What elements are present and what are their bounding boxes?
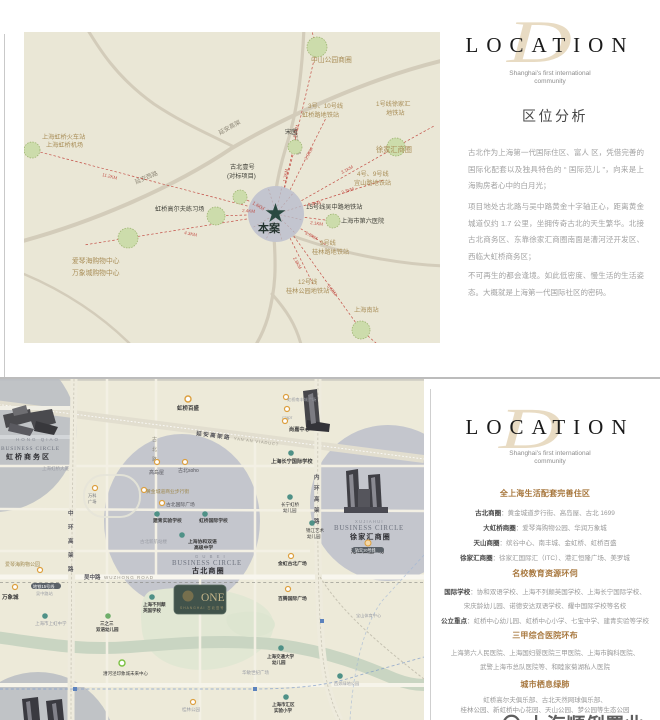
svg-text:WUZHONG ROAD: WUZHONG ROAD <box>104 575 154 580</box>
svg-text:高级中学: 高级中学 <box>194 544 213 551</box>
svg-text:上海市上虹中学: 上海市上虹中学 <box>35 620 67 627</box>
svg-text:上海交通大学: 上海交通大学 <box>267 653 294 660</box>
svg-text:锦江艺术: 锦江艺术 <box>306 527 324 534</box>
svg-text:爱琴海购物中心: 爱琴海购物中心 <box>72 256 120 265</box>
svg-text:幼儿园: 幼儿园 <box>283 507 297 514</box>
svg-text:路: 路 <box>314 517 320 525</box>
svg-text:幼儿园: 幼儿园 <box>272 659 286 666</box>
svg-text:高: 高 <box>68 537 74 545</box>
svg-text:中: 中 <box>68 509 74 517</box>
svg-text:英国学校: 英国学校 <box>143 607 161 614</box>
svg-text:内: 内 <box>314 473 320 481</box>
svg-text:轨交10号线: 轨交10号线 <box>355 547 375 553</box>
svg-text:上海协和双语: 上海协和双语 <box>188 538 217 545</box>
svg-text:环: 环 <box>314 484 320 492</box>
svg-text:地铁15号线: 地铁15号线 <box>33 583 55 590</box>
svg-text:G U B E I: G U B E I <box>195 554 226 559</box>
svg-text:(对标项目): (对标项目) <box>227 172 256 180</box>
svg-text:架: 架 <box>67 551 74 559</box>
svg-text:15号线吴中路地铁站: 15号线吴中路地铁站 <box>306 203 362 211</box>
svg-text:上海不列颠: 上海不列颠 <box>143 601 166 608</box>
svg-text:宝山体育中心: 宝山体育中心 <box>356 612 382 619</box>
svg-text:高: 高 <box>314 495 320 503</box>
svg-text:徐家汇商圈: 徐家汇商圈 <box>376 145 412 154</box>
svg-text:虹桥南丰城广场: 虹桥南丰城广场 <box>287 396 316 403</box>
svg-text:万科: 万科 <box>88 492 97 499</box>
svg-text:上海虹桥火车站: 上海虹桥火车站 <box>42 133 85 141</box>
svg-text:高岛屋: 高岛屋 <box>149 469 164 476</box>
svg-text:地铁站: 地铁站 <box>386 109 405 117</box>
svg-text:爱琴海购物公园: 爱琴海购物公园 <box>5 561 40 568</box>
svg-text:广场: 广场 <box>88 498 96 505</box>
svg-text:上海虹桥大厦: 上海虹桥大厦 <box>42 465 69 472</box>
svg-text:古北国际广场: 古北国际广场 <box>166 501 195 508</box>
svg-text:1号线徐家汇: 1号线徐家汇 <box>376 100 410 108</box>
svg-text:双语幼儿园: 双语幼儿园 <box>96 626 119 633</box>
svg-text:古北soho: 古北soho <box>178 467 199 474</box>
svg-text:黄金城道商业步行街: 黄金城道商业步行街 <box>146 488 189 495</box>
svg-text:漕河泾印象城未来中心: 漕河泾印象城未来中心 <box>103 670 148 677</box>
svg-text:HONG QIAO: HONG QIAO <box>16 437 60 442</box>
svg-text:三之三: 三之三 <box>100 620 114 627</box>
svg-text:BUSINESS CIRCLE: BUSINESS CIRCLE <box>1 446 60 452</box>
svg-text:9号线: 9号线 <box>320 239 336 247</box>
svg-text:长宁虹桥: 长宁虹桥 <box>281 501 299 508</box>
svg-text:12号线: 12号线 <box>298 278 317 286</box>
svg-text:路: 路 <box>68 565 74 573</box>
svg-text:上海虹桥机场: 上海虹桥机场 <box>46 141 83 149</box>
svg-text:环: 环 <box>68 523 74 531</box>
svg-text:宋园: 宋园 <box>285 128 297 136</box>
svg-text:上海市汇区: 上海市汇区 <box>272 701 295 708</box>
svg-text:古北商圈: 古北商圈 <box>192 566 225 575</box>
svg-text:BUSINESS CIRCLE: BUSINESS CIRCLE <box>172 560 242 567</box>
svg-text:4号、9号线: 4号、9号线 <box>357 170 389 178</box>
svg-text:桂林路地铁站: 桂林路地铁站 <box>312 248 349 256</box>
svg-text:BUSINESS CIRCLE: BUSINESS CIRCLE <box>334 525 404 532</box>
svg-text:幼儿园: 幼儿园 <box>307 533 321 540</box>
svg-text:宜山路地铁站: 宜山路地铁站 <box>354 179 391 187</box>
svg-text:架: 架 <box>313 506 320 514</box>
svg-text:实验小学: 实验小学 <box>274 707 292 714</box>
svg-text:古北新航站楼: 古北新航站楼 <box>140 538 167 545</box>
svg-text:万象城购物中心: 万象城购物中心 <box>72 268 120 277</box>
svg-text:2.4KM: 2.4KM <box>242 208 256 214</box>
svg-text:古北壹号: 古北壹号 <box>230 163 255 171</box>
svg-text:上海南站: 上海南站 <box>354 306 379 314</box>
svg-text:北: 北 <box>152 446 157 453</box>
svg-text:吴中路: 吴中路 <box>84 573 101 581</box>
svg-text:虹桥商务区: 虹桥商务区 <box>6 452 51 461</box>
svg-text:上海市第六医院: 上海市第六医院 <box>341 217 384 225</box>
svg-text:XUJIAHUI: XUJIAHUI <box>355 519 384 524</box>
svg-text:华敏世纪广场: 华敏世纪广场 <box>242 669 269 676</box>
svg-text:古: 古 <box>152 436 157 443</box>
svg-text:ONE: ONE <box>201 592 225 604</box>
svg-text:中山公园商圈: 中山公园商圈 <box>311 55 352 64</box>
svg-text:3号、10号线: 3号、10号线 <box>308 102 343 110</box>
svg-text:本案: 本案 <box>258 221 281 235</box>
svg-text:金虹古北广场: 金虹古北广场 <box>277 560 307 567</box>
svg-text:上海长宁国际学校: 上海长宁国际学校 <box>271 457 313 465</box>
svg-text:尚嘉中心: 尚嘉中心 <box>289 425 311 433</box>
svg-text:虹桥高尔夫练习场: 虹桥高尔夫练习场 <box>155 205 205 213</box>
svg-text:百腾国际广场: 百腾国际广场 <box>278 595 307 602</box>
svg-text:桂林公园: 桂林公园 <box>182 706 200 713</box>
svg-text:西郊绿地公园: 西郊绿地公园 <box>334 680 359 687</box>
svg-text:虹桥路地铁站: 虹桥路地铁站 <box>302 111 339 119</box>
svg-text:徐家汇商圈: 徐家汇商圈 <box>349 532 391 541</box>
svg-text:虹桥国际学校: 虹桥国际学校 <box>199 517 228 524</box>
svg-text:吴中路站: 吴中路站 <box>36 590 53 597</box>
svg-text:虹桥百盛: 虹桥百盛 <box>177 404 200 412</box>
svg-text:桂林公园地铁站: 桂林公园地铁站 <box>286 287 329 295</box>
svg-text:万象城: 万象城 <box>1 593 19 601</box>
svg-text:建青实验学校: 建青实验学校 <box>152 517 182 524</box>
svg-text:SHANGHAI 古北壹号: SHANGHAI 古北壹号 <box>180 605 225 610</box>
